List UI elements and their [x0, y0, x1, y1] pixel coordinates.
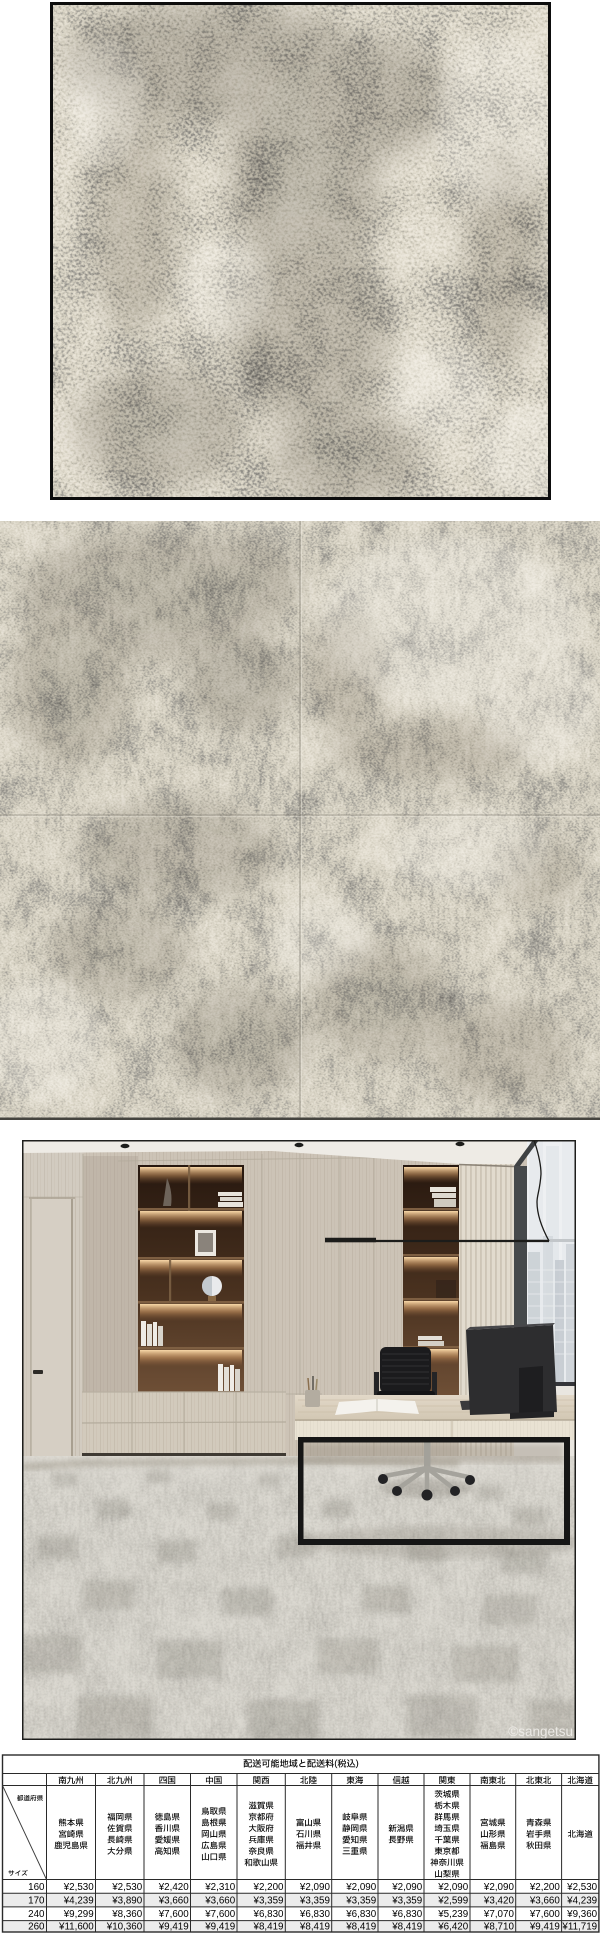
svg-text:¥9,360: ¥9,360: [566, 1909, 598, 1920]
svg-text:¥3,660: ¥3,660: [204, 1896, 236, 1907]
svg-text:¥3,359: ¥3,359: [299, 1896, 330, 1907]
svg-text:¥3,359: ¥3,359: [345, 1896, 376, 1907]
svg-text:¥3,359: ¥3,359: [391, 1896, 422, 1907]
svg-text:¥2,200: ¥2,200: [253, 1882, 285, 1893]
svg-text:¥6,830: ¥6,830: [253, 1909, 285, 1920]
svg-text:¥3,660: ¥3,660: [529, 1896, 561, 1907]
svg-text:¥2,200: ¥2,200: [529, 1882, 561, 1893]
svg-text:¥8,419: ¥8,419: [391, 1922, 422, 1933]
svg-text:¥8,419: ¥8,419: [345, 1922, 376, 1933]
svg-text:¥3,660: ¥3,660: [158, 1896, 190, 1907]
svg-text:¥8,710: ¥8,710: [483, 1922, 515, 1933]
svg-text:¥11,600: ¥11,600: [58, 1922, 94, 1933]
svg-text:160: 160: [28, 1882, 45, 1893]
svg-text:¥7,600: ¥7,600: [204, 1909, 236, 1920]
svg-text:240: 240: [28, 1909, 45, 1920]
svg-text:¥2,599: ¥2,599: [437, 1896, 468, 1907]
svg-text:¥2,530: ¥2,530: [63, 1882, 95, 1893]
svg-text:¥8,419: ¥8,419: [299, 1922, 330, 1933]
svg-text:¥2,420: ¥2,420: [158, 1882, 190, 1893]
svg-text:¥2,090: ¥2,090: [483, 1882, 515, 1893]
svg-text:¥9,419: ¥9,419: [158, 1922, 189, 1933]
svg-text:¥7,070: ¥7,070: [483, 1909, 515, 1920]
svg-text:¥7,600: ¥7,600: [158, 1909, 190, 1920]
svg-text:¥6,830: ¥6,830: [391, 1909, 423, 1920]
svg-text:¥3,890: ¥3,890: [111, 1896, 143, 1907]
svg-text:¥7,600: ¥7,600: [529, 1909, 561, 1920]
svg-text:¥3,420: ¥3,420: [483, 1896, 515, 1907]
svg-text:¥6,830: ¥6,830: [299, 1909, 331, 1920]
svg-text:¥4,239: ¥4,239: [566, 1896, 597, 1907]
svg-text:170: 170: [28, 1896, 45, 1907]
svg-text:©sangetsu: ©sangetsu: [508, 1724, 573, 1739]
svg-text:¥8,419: ¥8,419: [253, 1922, 284, 1933]
svg-text:¥3,359: ¥3,359: [253, 1896, 284, 1907]
svg-text:¥10,360: ¥10,360: [106, 1922, 143, 1933]
svg-text:260: 260: [28, 1922, 45, 1933]
svg-text:¥2,530: ¥2,530: [111, 1882, 143, 1893]
svg-text:¥5,239: ¥5,239: [437, 1909, 468, 1920]
svg-text:¥2,530: ¥2,530: [566, 1882, 598, 1893]
svg-text:¥2,090: ¥2,090: [391, 1882, 423, 1893]
svg-text:¥2,090: ¥2,090: [345, 1882, 377, 1893]
svg-text:¥11,719: ¥11,719: [561, 1922, 597, 1933]
svg-text:¥2,090: ¥2,090: [437, 1882, 469, 1893]
svg-text:¥4,239: ¥4,239: [63, 1896, 94, 1907]
svg-text:¥9,299: ¥9,299: [63, 1909, 94, 1920]
svg-text:¥2,310: ¥2,310: [204, 1882, 236, 1893]
svg-text:¥9,419: ¥9,419: [529, 1922, 560, 1933]
svg-text:¥8,360: ¥8,360: [111, 1909, 143, 1920]
svg-text:¥6,830: ¥6,830: [345, 1909, 377, 1920]
svg-text:¥2,090: ¥2,090: [299, 1882, 331, 1893]
svg-text:¥6,420: ¥6,420: [437, 1922, 469, 1933]
svg-text:¥9,419: ¥9,419: [204, 1922, 235, 1933]
